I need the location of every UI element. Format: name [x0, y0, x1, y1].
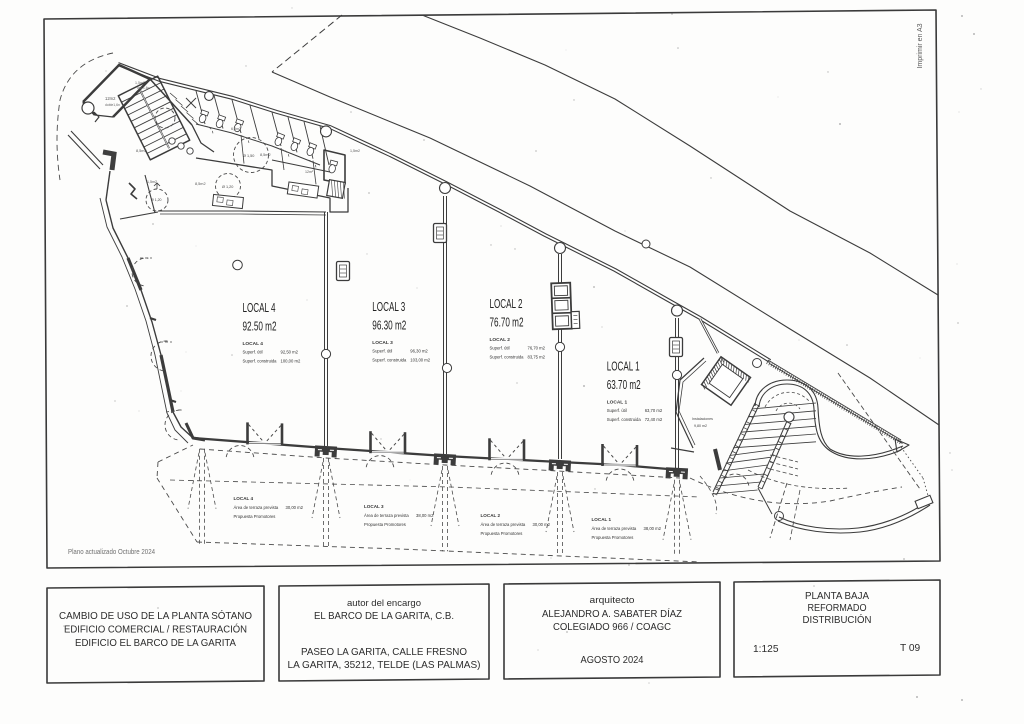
svg-text:12m²: 12m² [305, 170, 314, 174]
svg-text:38,00 m2: 38,00 m2 [416, 513, 434, 518]
svg-text:LOCAL 3: LOCAL 3 [372, 299, 405, 314]
svg-text:63,70 m2: 63,70 m2 [645, 408, 663, 413]
svg-text:LOCAL 3: LOCAL 3 [364, 504, 384, 509]
svg-text:COLEGIADO 966 / COAGC: COLEGIADO 966 / COAGC [553, 622, 671, 633]
svg-text:LOCAL 4: LOCAL 4 [243, 341, 264, 347]
svg-text:LOCAL 1: LOCAL 1 [607, 400, 628, 406]
svg-text:76.70 m2: 76.70 m2 [490, 315, 524, 330]
svg-text:Superf. útil: Superf. útil [372, 349, 392, 354]
svg-text:8,5m2: 8,5m2 [195, 182, 206, 186]
svg-text:1,5m2: 1,5m2 [350, 149, 360, 153]
svg-text:8,5m2: 8,5m2 [260, 153, 271, 157]
svg-text:Propuesta Promotores: Propuesta Promotores [592, 535, 634, 540]
svg-text:6,5m2: 6,5m2 [231, 127, 241, 131]
svg-text:LA GARITA, 35212, TELDE (LAS P: LA GARITA, 35212, TELDE (LAS PALMAS) [288, 660, 481, 671]
svg-text:REFORMADO: REFORMADO [808, 603, 867, 614]
svg-text:LOCAL 1: LOCAL 1 [592, 517, 612, 522]
svg-text:Propuesta Promotores: Propuesta Promotores [481, 531, 523, 536]
svg-text:arquitecto: arquitecto [590, 594, 635, 605]
svg-text:76,70 m2: 76,70 m2 [528, 346, 546, 351]
svg-text:LOCAL 4: LOCAL 4 [234, 496, 254, 501]
svg-text:Superf. construida: Superf. construida [490, 355, 525, 360]
svg-text:100,00 m2: 100,00 m2 [281, 359, 301, 364]
svg-text:1,5m2: 1,5m2 [147, 180, 157, 184]
svg-text:Superf. construida: Superf. construida [243, 359, 278, 364]
svg-text:96,30 m2: 96,30 m2 [410, 349, 428, 354]
svg-text:Área de terraza prevista: Área de terraza prevista [364, 513, 409, 518]
svg-text:LOCAL 2: LOCAL 2 [481, 513, 501, 518]
svg-text:PASEO LA GARITA, CALLE FRESNO: PASEO LA GARITA, CALLE FRESNO [301, 647, 467, 658]
svg-text:103,00 m2: 103,00 m2 [410, 358, 430, 363]
svg-text:38,00 m2: 38,00 m2 [644, 526, 662, 531]
svg-text:72,40 m2: 72,40 m2 [645, 417, 663, 422]
svg-text:92,50 m2: 92,50 m2 [281, 350, 299, 355]
svg-text:83,75 m2: 83,75 m2 [528, 355, 546, 360]
svg-text:PLANTA BAJA: PLANTA BAJA [805, 591, 869, 602]
svg-text:Área de terraza prevista: Área de terraza prevista [592, 526, 637, 531]
svg-text:EDIFICIO EL BARCO DE LA GARITA: EDIFICIO EL BARCO DE LA GARITA [75, 638, 236, 649]
svg-text:Superf. útil: Superf. útil [243, 350, 263, 355]
svg-text:Instalaciones: Instalaciones [692, 417, 713, 421]
svg-text:Superf. construida: Superf. construida [607, 417, 642, 422]
svg-text:Superf. útil: Superf. útil [490, 346, 510, 351]
svg-text:Propuesta Promotores: Propuesta Promotores [364, 522, 406, 527]
svg-text:Área de terraza prevista: Área de terraza prevista [234, 505, 279, 510]
svg-text:EDIFICIO COMERCIAL / RESTAURAC: EDIFICIO COMERCIAL / RESTAURACIÓN [64, 623, 247, 636]
svg-text:AGOSTO 2024: AGOSTO 2024 [581, 655, 644, 666]
svg-text:LOCAL 3: LOCAL 3 [372, 340, 393, 346]
svg-text:96.30 m2: 96.30 m2 [372, 318, 406, 333]
svg-text:Superf. construida: Superf. construida [372, 358, 407, 363]
svg-text:autor del encargo: autor del encargo [347, 597, 421, 608]
svg-text:LOCAL 2: LOCAL 2 [490, 337, 511, 343]
svg-text:Ø 1,50: Ø 1,50 [243, 154, 254, 158]
svg-text:30,00 m2: 30,00 m2 [533, 522, 551, 527]
svg-text:EL BARCO DE LA GARITA, C.B.: EL BARCO DE LA GARITA, C.B. [314, 611, 454, 622]
svg-text:9,80 m2: 9,80 m2 [694, 424, 707, 428]
svg-text:CAMBIO DE USO DE LA PLANTA SÓT: CAMBIO DE USO DE LA PLANTA SÓTANO [59, 609, 252, 622]
svg-text:ALEJANDRO A. SABATER DÍAZ: ALEJANDRO A. SABATER DÍAZ [542, 607, 682, 620]
svg-text:LOCAL 2: LOCAL 2 [490, 296, 523, 311]
svg-text:63.70 m2: 63.70 m2 [607, 377, 641, 392]
svg-text:Ø 1,20: Ø 1,20 [151, 198, 162, 202]
svg-text:Plano actualizado Octubre 2024: Plano actualizado Octubre 2024 [68, 549, 155, 556]
svg-text:DISTRIBUCIÓN: DISTRIBUCIÓN [803, 613, 872, 626]
svg-text:Superf. útil: Superf. útil [607, 408, 627, 413]
svg-text:Propuesta Promotores: Propuesta Promotores [234, 514, 276, 519]
svg-text:12m2: 12m2 [105, 96, 116, 101]
svg-text:30,00 m2: 30,00 m2 [286, 505, 304, 510]
svg-text:Ø 1,20: Ø 1,20 [222, 185, 233, 189]
svg-text:Imprimir en A3: Imprimir en A3 [917, 23, 924, 68]
svg-text:T 09: T 09 [900, 643, 921, 654]
svg-text:LOCAL 1: LOCAL 1 [607, 359, 640, 374]
svg-text:LOCAL 4: LOCAL 4 [243, 300, 276, 315]
svg-text:1:125: 1:125 [753, 644, 779, 655]
svg-text:8,5m2: 8,5m2 [136, 149, 147, 153]
svg-text:doble1,6n: doble1,6n [105, 103, 120, 107]
svg-text:92.50 m2: 92.50 m2 [243, 319, 277, 334]
svg-text:Área de terraza prevista: Área de terraza prevista [481, 522, 526, 527]
